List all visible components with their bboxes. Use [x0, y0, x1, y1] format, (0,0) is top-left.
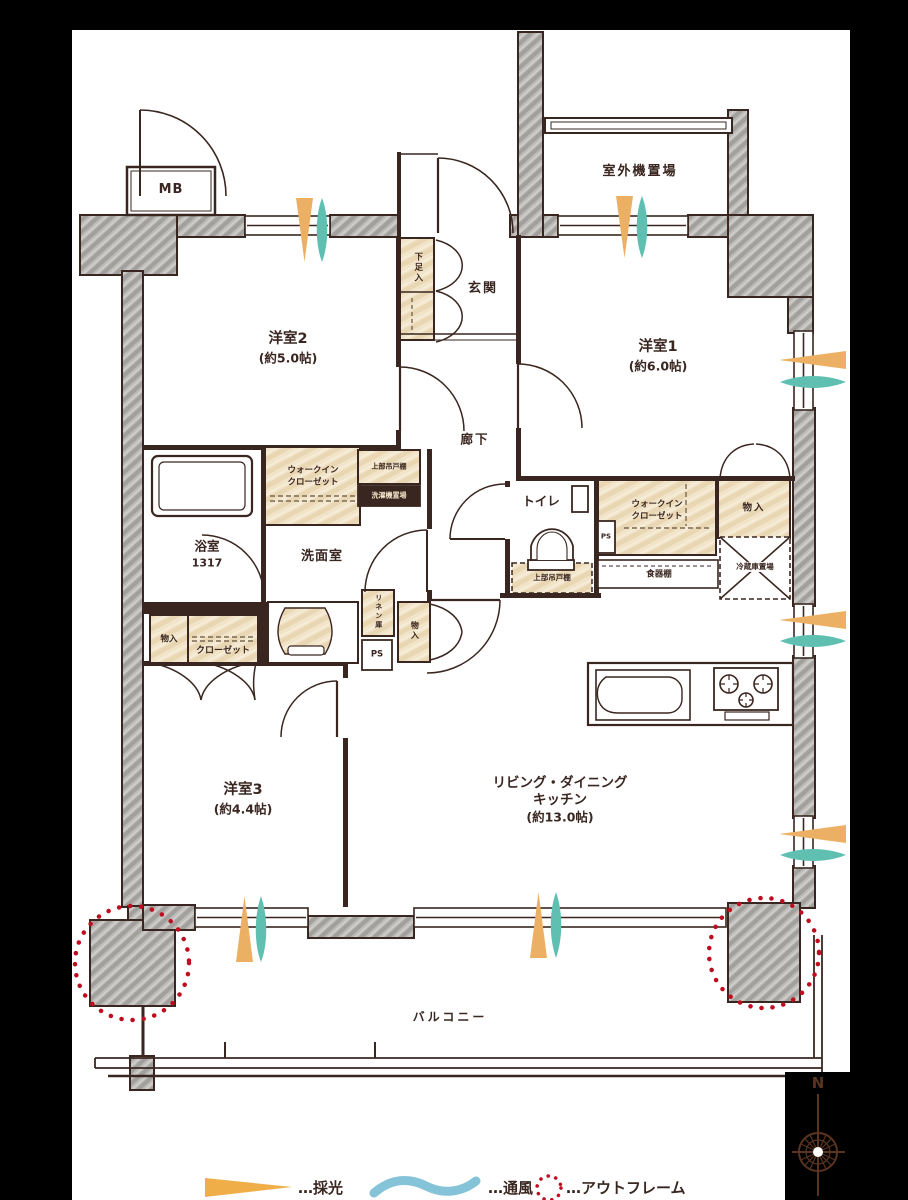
label-fridge-space: 冷蔵庫置場 [735, 562, 775, 572]
label-ldk-line1: リビング・ダイニング [493, 774, 628, 792]
label-toilet: トイレ [522, 494, 560, 511]
label-upper-cabinet-left: 上部吊戸棚 [372, 462, 407, 471]
label-bedroom1-name: 洋室1 [638, 338, 677, 358]
label-entrance: 玄関 [468, 280, 498, 298]
label-outdoor-unit: 室外機置場 [602, 163, 677, 181]
label-ps-left: PS [371, 649, 383, 660]
compass-north-label: N [812, 1073, 825, 1093]
label-upper-cabinet-toilet: 上部吊戸棚 [533, 573, 571, 583]
bathtub [152, 456, 252, 516]
legend-daylight-arrow [205, 1178, 292, 1197]
label-wic-left-line2: クローゼット [287, 477, 338, 488]
label-hallway: 廊下 [460, 432, 489, 449]
label-washroom: 洗面室 [301, 548, 343, 566]
outdoor-unit-bay [545, 118, 732, 133]
kitchen-counter [588, 663, 793, 725]
legend-outframe-label: …アウトフレーム [566, 1178, 686, 1198]
label-wic-right-line2: クローゼット [631, 511, 682, 522]
vanity-sink [268, 602, 358, 663]
label-bedroom3-size: (約4.4帖) [214, 802, 273, 819]
label-wic-left-line1: ウォークイン [287, 465, 338, 476]
label-linen: リネン庫 [373, 594, 382, 630]
label-storage-mid: 物入 [409, 621, 420, 641]
label-ps-right: PS [601, 532, 611, 541]
label-bedroom2-size: (約5.0帖) [259, 351, 318, 368]
label-closet: クローゼット [196, 645, 250, 657]
label-wic-right-line1: ウォークイン [631, 499, 682, 510]
toilet-bowl [528, 529, 574, 570]
label-storage-right: 物入 [742, 503, 765, 516]
label-mb: MB [159, 181, 184, 199]
label-balcony: バルコニー [413, 1009, 488, 1025]
label-storage-left: 物入 [160, 634, 177, 645]
label-bedroom2-name: 洋室2 [268, 330, 307, 350]
legend-daylight-label: …採光 [298, 1178, 343, 1198]
label-cupboard: 食器棚 [646, 569, 672, 580]
legend-ventilation-label: …通風 [488, 1178, 533, 1198]
legend-ventilation-wave [374, 1181, 476, 1193]
legend-outframe-circle [537, 1176, 561, 1200]
label-bathroom-name: 浴室 [194, 539, 219, 556]
label-ldk-size: (約13.0帖) [526, 810, 593, 827]
label-shoe-cabinet: 下足入 [411, 252, 422, 284]
label-bathroom-size: 1317 [192, 557, 223, 572]
balcony-railing [95, 935, 822, 1076]
label-ldk-line2: キッチン [533, 791, 587, 809]
label-bedroom3-name: 洋室3 [223, 781, 262, 801]
label-washer-space: 洗濯機置場 [372, 491, 407, 500]
floorplan-canvas: MB 室外機置場 洋室2 (約5.0帖) 洋室1 (約6.0帖) 玄関 廊下 下… [0, 0, 908, 1200]
label-bedroom1-size: (約6.0帖) [629, 359, 688, 376]
